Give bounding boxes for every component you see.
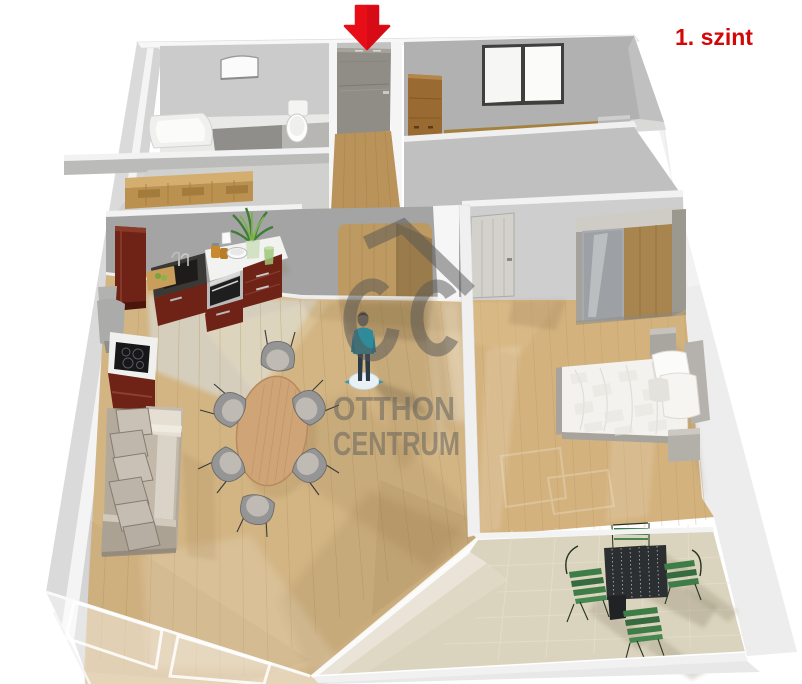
svg-text:OTTHON: OTTHON [333,390,455,427]
svg-text:CENTRUM: CENTRUM [333,425,460,462]
svg-text:1. szint: 1. szint [675,24,753,50]
